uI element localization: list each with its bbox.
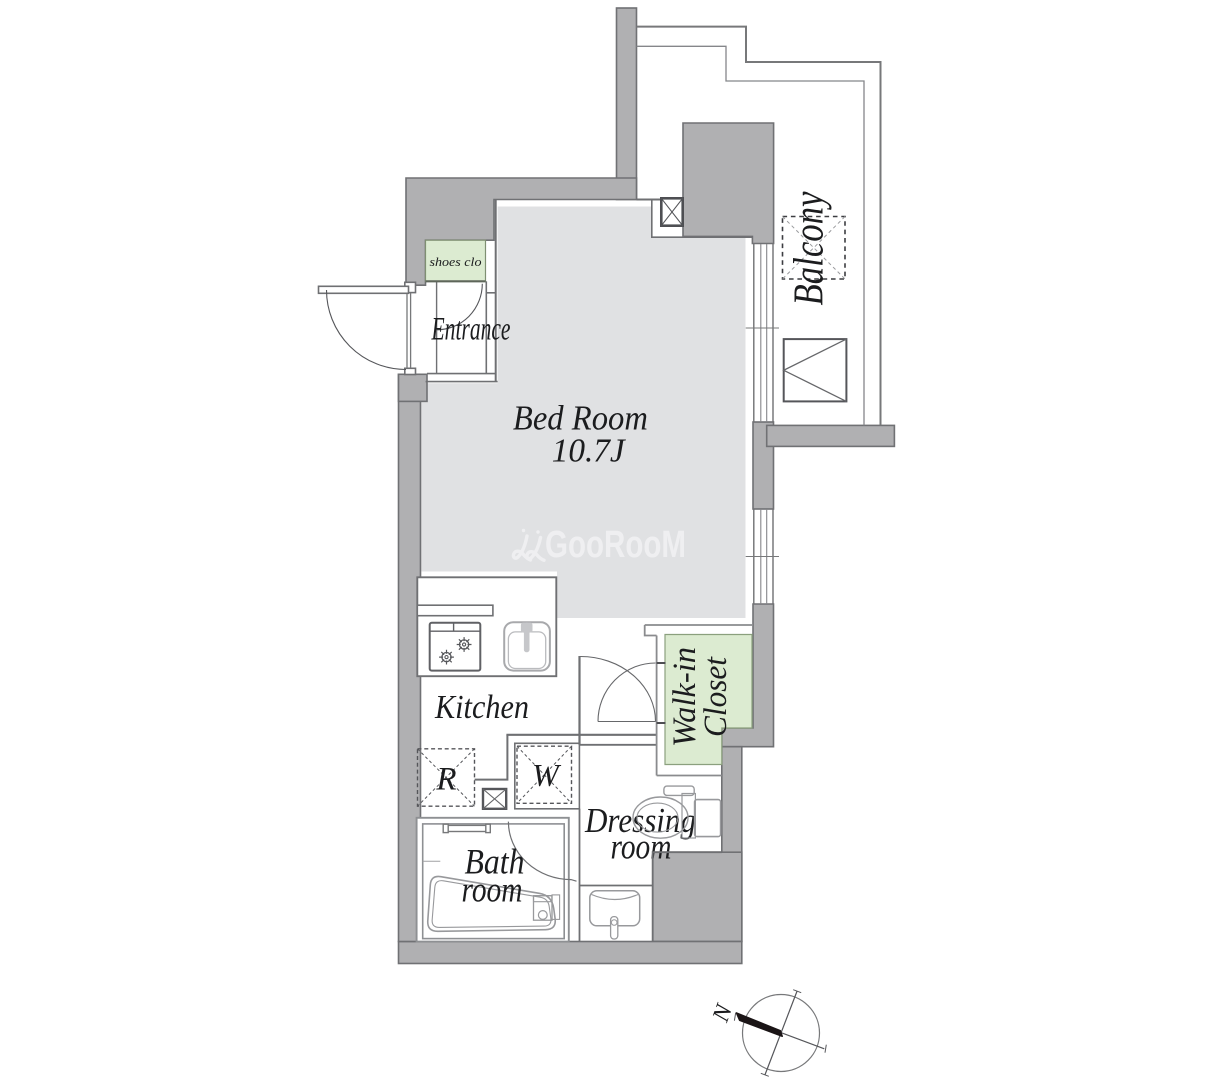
svg-text:10.7J: 10.7J (552, 433, 627, 470)
svg-text:Closet: Closet (698, 656, 734, 737)
svg-text:GooRooM: GooRooM (545, 524, 686, 566)
svg-text:Entrance: Entrance (431, 312, 511, 348)
svg-text:R: R (435, 762, 456, 798)
svg-text:W: W (532, 757, 562, 793)
svg-text:shoes clo: shoes clo (430, 255, 482, 269)
svg-text:N: N (708, 1000, 739, 1027)
svg-text:Kitchen: Kitchen (434, 689, 529, 726)
svg-text:room: room (462, 870, 523, 910)
svg-text:Balcony: Balcony (787, 191, 833, 305)
